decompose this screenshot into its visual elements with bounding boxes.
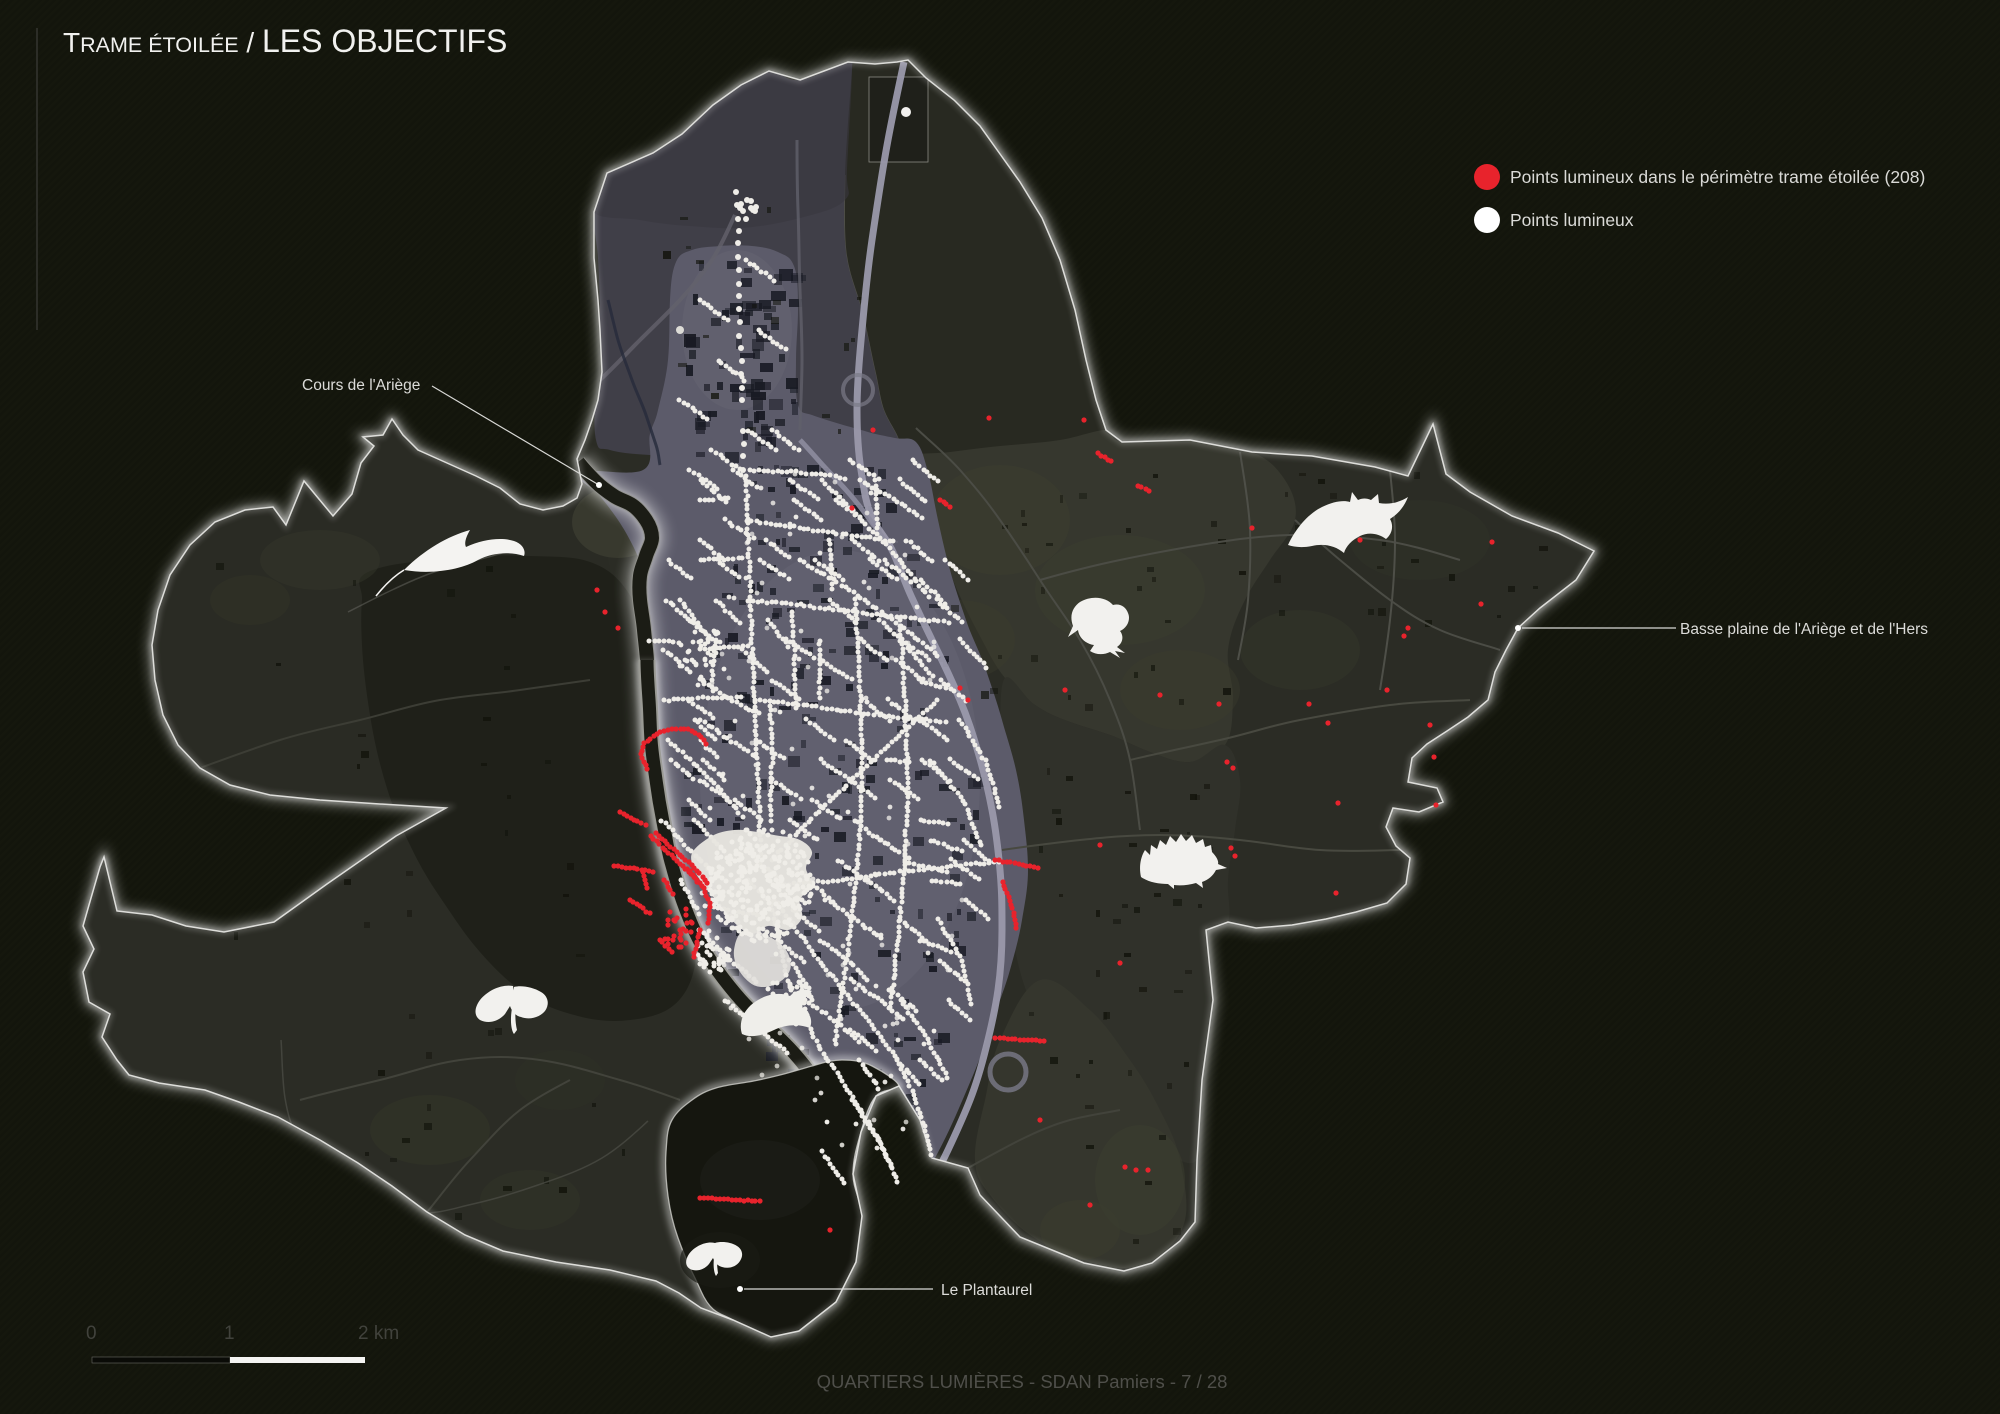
svg-text:QUARTIERS LUMIÈRES - SDAN Pami: QUARTIERS LUMIÈRES - SDAN Pamiers - 7 / … [817,1371,1228,1392]
svg-text:1: 1 [224,1323,235,1344]
svg-text:Le Plantaurel: Le Plantaurel [941,1282,1032,1299]
svg-text:2 km: 2 km [358,1323,399,1344]
svg-text:0: 0 [86,1323,97,1344]
svg-text:Basse plaine de l'Ariège et de: Basse plaine de l'Ariège et de l'Hers [1680,621,1928,638]
svg-text:Cours de l'Ariège: Cours de l'Ariège [302,377,420,394]
svg-text:Points lumineux dans le périmè: Points lumineux dans le périmètre trame … [1510,167,1925,187]
svg-text:Points lumineux: Points lumineux [1510,210,1634,230]
